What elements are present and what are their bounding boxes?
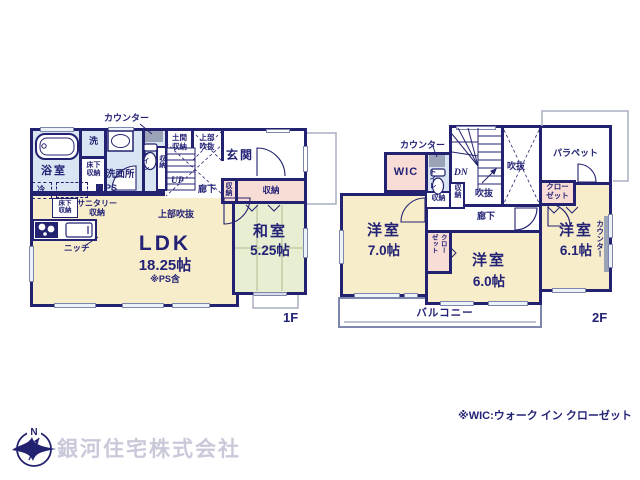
window bbox=[440, 301, 474, 306]
ps-shaft bbox=[96, 184, 103, 192]
void-top-label: 上部吹抜 bbox=[191, 134, 223, 151]
counter-label-2f: カウンター bbox=[400, 140, 445, 150]
laundry-label: 洗 bbox=[89, 136, 98, 146]
doma-storage-label: 土間収納 bbox=[165, 134, 194, 151]
washitsu-label: 和室 bbox=[238, 223, 302, 240]
balcony-label: バルコニー bbox=[400, 307, 490, 319]
washitsu-size-label: 5.25帖 bbox=[238, 243, 302, 259]
fridge-label: 冷 bbox=[37, 185, 45, 194]
parapet-label: パラペット bbox=[539, 148, 612, 158]
ldk-label: LDK bbox=[120, 232, 210, 256]
toilet-counter-2f bbox=[429, 155, 445, 167]
bathroom-label: 浴室 bbox=[41, 165, 67, 178]
stairs-dn-label: DN bbox=[454, 168, 468, 179]
window bbox=[608, 244, 613, 268]
compass-logo-icon: N bbox=[12, 426, 56, 466]
entrance-label: 玄関 bbox=[226, 149, 254, 163]
compass-north-label: N bbox=[30, 427, 37, 438]
sanitary-storage-label: サニタリー収納 bbox=[76, 199, 118, 217]
bedroom1-size-label: 7.0帖 bbox=[348, 243, 420, 259]
floor2-label: 2F bbox=[592, 311, 607, 326]
toilet-closet-label-1f: 収納 bbox=[157, 155, 164, 181]
window bbox=[552, 288, 586, 293]
window bbox=[456, 126, 496, 130]
storage-label-1f: 収納 bbox=[235, 186, 307, 196]
window bbox=[404, 293, 418, 298]
storage-2f-b-label: 収納 bbox=[453, 184, 461, 208]
window bbox=[122, 303, 164, 308]
hall-label-2f: 廊下 bbox=[477, 211, 495, 221]
bedroom2-label: 洋室 bbox=[450, 252, 528, 269]
hall-label-1f: 廊下 bbox=[198, 184, 216, 194]
window bbox=[303, 228, 308, 258]
counter-side-label: カウンター bbox=[595, 220, 604, 274]
closet-mid-label: クローゼット bbox=[429, 234, 447, 272]
underfloor-storage-label-2: 床下収納 bbox=[53, 200, 77, 215]
window bbox=[303, 146, 308, 172]
counter-label-1f: カウンター bbox=[104, 113, 149, 123]
window bbox=[354, 293, 400, 298]
sanitary-storage-space bbox=[56, 182, 88, 198]
ldk-note-label: ※PS含 bbox=[120, 274, 210, 284]
window bbox=[54, 303, 96, 308]
hall-closet-label-1f: 収納 bbox=[224, 182, 232, 202]
floorplan-page: { "f1": { "floor": "1F", "counter": "カウン… bbox=[0, 0, 640, 480]
window bbox=[253, 292, 287, 296]
window bbox=[266, 129, 290, 133]
niche-label: ニッチ bbox=[64, 244, 90, 254]
window bbox=[40, 127, 74, 132]
underfloor-storage-label-1: 床下収納 bbox=[81, 162, 106, 178]
window bbox=[488, 301, 528, 306]
washroom-label: 洗面所 bbox=[106, 170, 135, 181]
void-big-label: 吹抜 bbox=[507, 161, 525, 171]
wic-note: ※WIC:ウォーク イン クローゼット bbox=[458, 410, 632, 423]
wic-label: WIC bbox=[384, 166, 428, 179]
toilet-label-1f: トイレ bbox=[141, 150, 149, 186]
window bbox=[29, 246, 34, 282]
storage-2f-a-label: 収納 bbox=[425, 195, 452, 203]
void-small-label: 吹抜 bbox=[475, 188, 493, 198]
company-name: 銀河住宅株式会社 bbox=[57, 438, 241, 462]
bedroom1-label: 洋室 bbox=[348, 222, 420, 239]
window bbox=[108, 127, 134, 132]
window bbox=[608, 214, 613, 238]
window bbox=[172, 303, 210, 308]
closet-bedroom3-label: クローゼット bbox=[539, 183, 576, 200]
floor1-label: 1F bbox=[283, 311, 298, 326]
ps-label: PS bbox=[105, 183, 117, 193]
void-mid-label: 上部吹抜 bbox=[158, 209, 194, 219]
ldk-size-label: 18.25帖 bbox=[120, 257, 210, 274]
bedroom2-size-label: 6.0帖 bbox=[450, 274, 528, 290]
window bbox=[339, 230, 344, 264]
toilet-counter-1f bbox=[145, 131, 163, 142]
stairs-up-label: UP bbox=[171, 176, 184, 187]
